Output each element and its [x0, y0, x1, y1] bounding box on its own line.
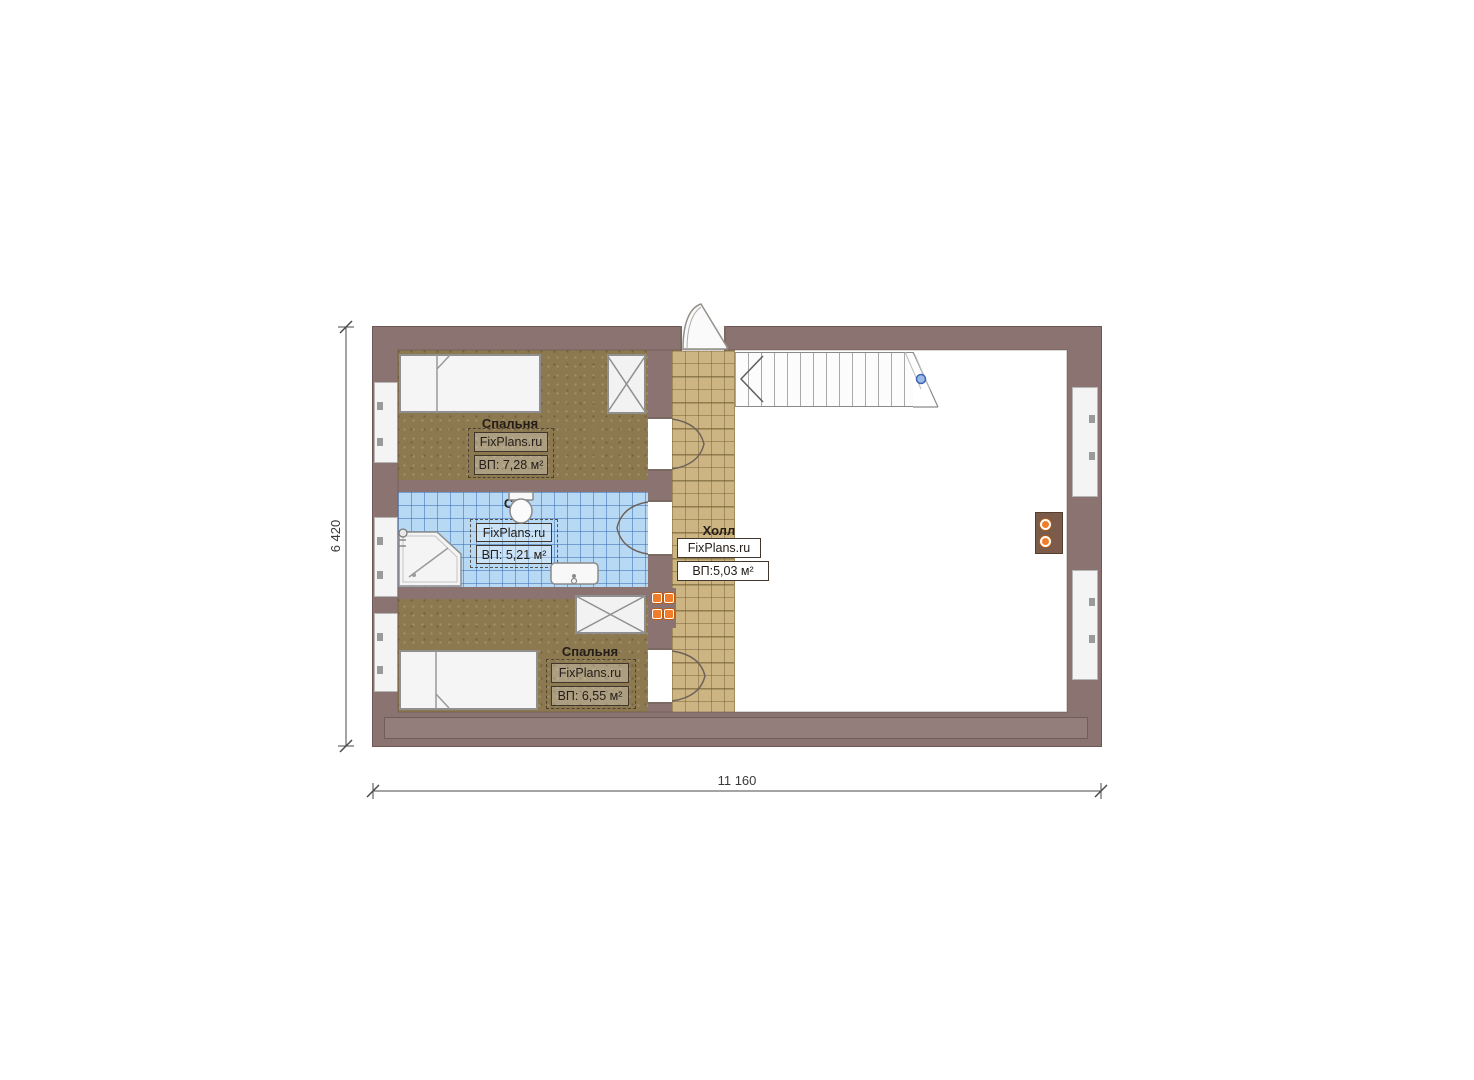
- door-opening-bedroom-top: [648, 417, 672, 471]
- room-title-hall: Холл: [689, 523, 749, 538]
- wardrobe-symbol-top: [607, 354, 646, 414]
- window: [374, 517, 398, 597]
- dimension-label-vertical: 6 420: [328, 500, 344, 572]
- brand-label: FixPlans.ru: [677, 538, 761, 558]
- bottom-wall-band: [384, 717, 1088, 739]
- flue-dot: [1040, 536, 1051, 547]
- area-label-bedroom-bottom: ВП: 6,55 м²: [551, 686, 629, 706]
- door-opening-bathroom: [648, 500, 672, 556]
- area-label-hall: ВП:5,03 м²: [677, 561, 769, 581]
- wardrobe-symbol-bottom: [575, 595, 646, 634]
- room-title-bathroom: С/у: [489, 496, 539, 511]
- area-label-bathroom: ВП: 5,21 м²: [476, 545, 552, 564]
- floor-plan-page: Спальня FixPlans.ru ВП: 7,28 м² С/у FixP…: [0, 0, 1474, 1080]
- window: [1072, 387, 1098, 497]
- stairs-symbol: [735, 352, 913, 407]
- area-label-bedroom-top: ВП: 7,28 м²: [474, 455, 548, 475]
- flue-vent: [652, 593, 662, 603]
- chimney-block-right: [1035, 512, 1063, 554]
- brand-label: FixPlans.ru: [476, 523, 552, 542]
- flue-vent: [652, 609, 662, 619]
- bed-symbol-bottom: [399, 650, 538, 710]
- window: [1072, 570, 1098, 680]
- room-title-bedroom-bottom: Спальня: [542, 644, 638, 659]
- window: [374, 382, 398, 463]
- bed-symbol-top: [399, 354, 541, 413]
- brand-label: FixPlans.ru: [474, 432, 548, 452]
- window: [374, 613, 398, 692]
- flue-vent: [664, 593, 674, 603]
- dimension-label-horizontal: 11 160: [697, 773, 777, 789]
- flue-vent: [664, 609, 674, 619]
- door-opening-bedroom-bottom: [648, 648, 672, 704]
- chimney-block-hall: [650, 588, 676, 628]
- brand-label: FixPlans.ru: [551, 663, 629, 683]
- door-opening-entrance: [680, 326, 726, 351]
- flue-dot: [1040, 519, 1051, 530]
- wall-bedroom-bathroom: [398, 480, 648, 492]
